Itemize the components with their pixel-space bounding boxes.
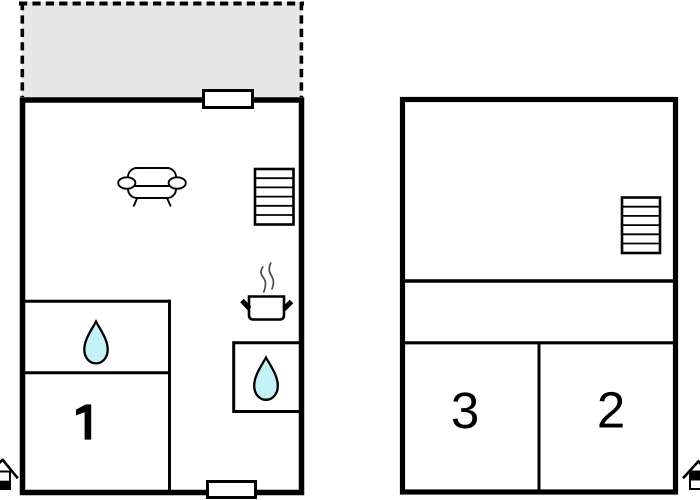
svg-text:3: 3 — [451, 382, 479, 439]
svg-text:2: 2 — [597, 382, 625, 439]
